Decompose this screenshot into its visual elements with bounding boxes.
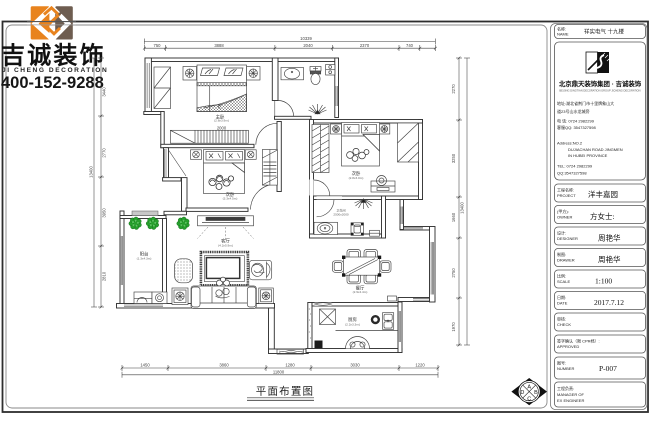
svg-text:洋丰嘉园: 洋丰嘉园 <box>588 189 618 199</box>
svg-text:740: 740 <box>406 43 414 48</box>
svg-text:(2.8x3.0m): (2.8x3.0m) <box>349 176 364 180</box>
svg-text:北京鼎天装饰集团 · 吉诚装饰: 北京鼎天装饰集团 · 吉诚装饰 <box>559 79 642 88</box>
svg-text:PROJECT: PROJECT <box>557 193 576 198</box>
svg-text:(4.2x5.9m): (4.2x5.9m) <box>218 244 233 248</box>
svg-text:周艳华: 周艳华 <box>598 254 621 264</box>
svg-text:1280: 1280 <box>285 363 295 368</box>
svg-text:750: 750 <box>154 43 162 48</box>
svg-text:3250: 3250 <box>451 153 456 163</box>
svg-text:1970: 1970 <box>451 322 456 332</box>
svg-text:3950: 3950 <box>102 208 107 218</box>
svg-text:IN HUBEI PROVINCE: IN HUBEI PROVINCE <box>568 153 608 158</box>
svg-text:D: D <box>520 390 524 396</box>
svg-text:Address:NO.2: Address:NO.2 <box>557 141 583 146</box>
svg-text:13400: 13400 <box>460 202 465 214</box>
svg-text:EX ENGINEER: EX ENGINEER <box>557 398 584 403</box>
svg-text:B: B <box>534 390 538 396</box>
svg-text:工程负责:: 工程负责: <box>557 385 574 391</box>
svg-text:3888: 3888 <box>214 43 224 48</box>
svg-text:审核:: 审核: <box>557 316 566 322</box>
svg-text:签字确认（限 CPR档）:: 签字确认（限 CPR档）: <box>557 338 600 344</box>
svg-text:DRAWER: DRAWER <box>557 258 575 263</box>
svg-text:TEL: 0724 2982299: TEL: 0724 2982299 <box>557 164 593 169</box>
svg-text:道23号山水龙城旁: 道23号山水龙城旁 <box>557 108 589 114</box>
svg-text:10339: 10339 <box>300 36 312 41</box>
svg-text:3860: 3860 <box>219 363 229 368</box>
svg-text:日期:: 日期: <box>557 294 566 300</box>
svg-text:2810: 2810 <box>102 271 107 281</box>
svg-text:DATE: DATE <box>557 301 568 306</box>
svg-text:方女士:: 方女士: <box>590 211 615 221</box>
svg-text:C: C <box>527 397 531 403</box>
svg-text:(2.2x3.3m): (2.2x3.3m) <box>345 323 360 327</box>
svg-text:OWNER: OWNER <box>557 215 572 220</box>
svg-text:MANAGER OF: MANAGER OF <box>557 392 584 397</box>
svg-text:比例:: 比例: <box>557 273 566 279</box>
svg-text:APPROVED: APPROVED <box>557 344 579 349</box>
svg-text:祥实电气 十九楼: 祥实电气 十九楼 <box>584 28 625 36</box>
svg-text:3030: 3030 <box>350 363 360 368</box>
svg-text:周艳华: 周艳华 <box>598 233 621 243</box>
svg-text:QQ:3547327598: QQ:3547327598 <box>557 171 587 176</box>
svg-text:P-007: P-007 <box>599 364 617 373</box>
svg-text:(2.9x4.4m): (2.9x4.4m) <box>353 290 368 294</box>
svg-text:2017.7.12: 2017.7.12 <box>594 298 624 307</box>
svg-text:2770: 2770 <box>102 148 107 158</box>
svg-text:DUJIACHAN ROAD JINGMEN: DUJIACHAN ROAD JINGMEN <box>568 147 623 152</box>
svg-text:400-152-9288: 400-152-9288 <box>1 74 104 92</box>
svg-text:(2.8x3.9m): (2.8x3.9m) <box>214 118 229 122</box>
svg-text:(1.3x4.3m): (1.3x4.3m) <box>137 257 152 261</box>
svg-text:2270: 2270 <box>451 84 456 94</box>
svg-text:(甲方):: (甲方): <box>557 208 569 214</box>
svg-text:2040: 2040 <box>303 43 313 48</box>
svg-text:2500x2000: 2500x2000 <box>333 213 349 217</box>
svg-text:吉诚装饰: 吉诚装饰 <box>1 43 106 70</box>
svg-text:2370: 2370 <box>360 43 370 48</box>
svg-text:1220: 1220 <box>415 363 425 368</box>
svg-text:平面布置图: 平面布置图 <box>256 386 315 398</box>
svg-text:CHECK: CHECK <box>557 322 571 327</box>
svg-text:图号:: 图号: <box>557 360 566 366</box>
svg-text:制图:: 制图: <box>557 251 566 257</box>
svg-text:NAME: NAME <box>557 32 569 37</box>
svg-text:电 话: 0724 2982299: 电 话: 0724 2982299 <box>557 118 595 124</box>
svg-text:NUMBER: NUMBER <box>557 366 574 371</box>
svg-text:(3.3x4.5m): (3.3x4.5m) <box>223 197 238 201</box>
svg-text:11800: 11800 <box>273 369 285 374</box>
svg-text:1:100: 1:100 <box>595 277 612 286</box>
svg-text:JI CHENG DECORATION: JI CHENG DECORATION <box>2 67 108 74</box>
svg-text:客服QQ: 3547327598: 客服QQ: 3547327598 <box>557 124 596 130</box>
svg-text:2000: 2000 <box>217 126 227 131</box>
svg-text:1660: 1660 <box>451 212 456 222</box>
svg-text:工程名称:: 工程名称: <box>557 187 574 193</box>
svg-text:2750: 2750 <box>451 268 456 278</box>
svg-text:SCALE: SCALE <box>557 279 570 284</box>
svg-text:地址:湖北省荆门市十里牌象山大: 地址:湖北省荆门市十里牌象山大 <box>557 100 614 106</box>
svg-text:3440: 3440 <box>102 87 107 97</box>
svg-text:A: A <box>527 385 531 391</box>
svg-text:13400: 13400 <box>89 166 94 178</box>
svg-text:设计:: 设计: <box>557 230 566 236</box>
svg-text:DESIGNER: DESIGNER <box>557 236 578 241</box>
svg-text:1450: 1450 <box>140 363 150 368</box>
svg-text:BEIJING DINGTIAN DECORATION GR: BEIJING DINGTIAN DECORATION GROUP JICHEN… <box>559 89 640 93</box>
